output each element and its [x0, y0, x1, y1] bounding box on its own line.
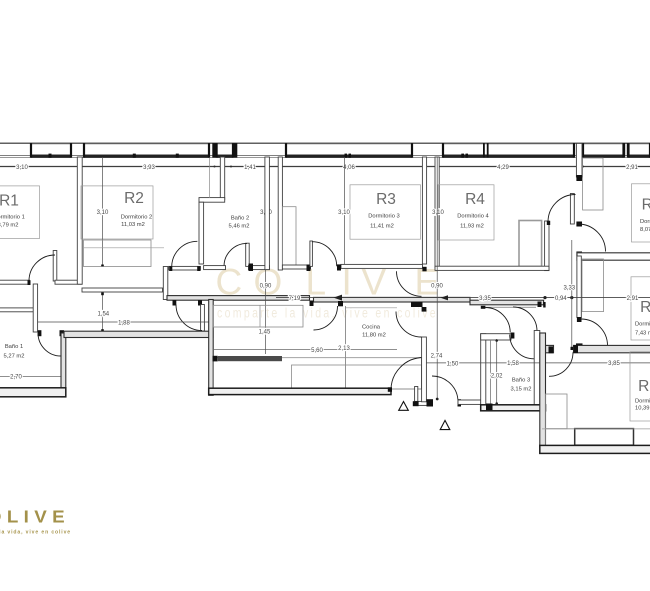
- svg-text:Baño 1: Baño 1: [5, 344, 23, 350]
- svg-text:Cocina: Cocina: [362, 325, 381, 331]
- svg-text:1,45: 1,45: [259, 329, 271, 335]
- svg-text:comparte la vida, vive en coli: comparte la vida, vive en colive: [0, 529, 71, 535]
- svg-text:Dormitorio 3: Dormitorio 3: [368, 214, 400, 220]
- svg-text:3,15 m2: 3,15 m2: [511, 387, 532, 393]
- svg-text:comparte la vida, vive en coli: comparte la vida, vive en colive: [217, 306, 438, 321]
- svg-text:R7: R7: [638, 378, 650, 395]
- svg-text:2,91: 2,91: [627, 296, 639, 302]
- svg-text:11,41 m2: 11,41 m2: [370, 224, 394, 230]
- svg-text:Dormitorio 7: Dormitorio 7: [635, 399, 650, 405]
- svg-text:1,58: 1,58: [507, 361, 519, 367]
- svg-text:2,70: 2,70: [10, 375, 22, 381]
- svg-text:11,03 m2: 11,03 m2: [121, 222, 145, 228]
- svg-text:11,93 m2: 11,93 m2: [460, 224, 484, 230]
- svg-text:Dormitorio 4: Dormitorio 4: [457, 214, 489, 220]
- svg-text:Dormitorio 1: Dormitorio 1: [0, 215, 25, 221]
- svg-text:3,93: 3,93: [143, 165, 155, 171]
- svg-text:0,90: 0,90: [431, 284, 443, 290]
- svg-text:1,88: 1,88: [118, 321, 130, 327]
- svg-text:Dormitorio 5: Dormitorio 5: [640, 219, 650, 225]
- svg-text:2,74: 2,74: [431, 353, 443, 359]
- svg-text:Baño 3: Baño 3: [512, 378, 530, 384]
- svg-text:3,10: 3,10: [16, 165, 28, 171]
- svg-text:2,02: 2,02: [491, 373, 503, 379]
- svg-text:Dormitorio 6: Dormitorio 6: [635, 322, 650, 328]
- svg-text:11,80 m2: 11,80 m2: [362, 333, 386, 339]
- svg-text:R3: R3: [376, 191, 396, 208]
- svg-text:3,85: 3,85: [608, 361, 620, 367]
- svg-text:10,39 m2: 10,39 m2: [635, 406, 650, 412]
- svg-text:1,50: 1,50: [447, 362, 459, 368]
- svg-text:R5: R5: [642, 197, 650, 214]
- svg-text:R1: R1: [0, 193, 19, 210]
- svg-text:3,35: 3,35: [479, 296, 491, 302]
- svg-text:Baño 2: Baño 2: [231, 215, 249, 221]
- svg-text:R6: R6: [640, 299, 650, 316]
- svg-text:5,60: 5,60: [311, 348, 323, 354]
- svg-text:R2: R2: [124, 190, 144, 207]
- svg-text:3,10: 3,10: [338, 210, 350, 216]
- svg-text:7,19: 7,19: [289, 296, 301, 302]
- svg-text:Dormitorio 2: Dormitorio 2: [121, 215, 153, 221]
- svg-text:1,54: 1,54: [97, 312, 109, 318]
- svg-text:3,10: 3,10: [432, 210, 444, 216]
- svg-text:COLIVE: COLIVE: [0, 506, 70, 526]
- svg-text:8,79 m2: 8,79 m2: [0, 223, 18, 229]
- svg-text:0,94: 0,94: [555, 296, 567, 302]
- svg-text:4,06: 4,06: [343, 165, 355, 171]
- svg-text:4,29: 4,29: [497, 165, 509, 171]
- svg-text:5,27 m2: 5,27 m2: [4, 353, 25, 359]
- svg-text:2,91: 2,91: [626, 165, 638, 171]
- svg-text:2,13: 2,13: [338, 346, 350, 352]
- svg-text:3,10: 3,10: [97, 210, 109, 216]
- svg-text:1,41: 1,41: [244, 165, 256, 171]
- svg-text:0,90: 0,90: [260, 284, 272, 290]
- svg-text:R4: R4: [465, 191, 485, 208]
- svg-text:5,46 m2: 5,46 m2: [229, 223, 250, 229]
- svg-text:7,43 m2: 7,43 m2: [635, 331, 650, 337]
- svg-text:3,33: 3,33: [563, 285, 575, 291]
- svg-text:8,07 m2: 8,07 m2: [640, 227, 650, 233]
